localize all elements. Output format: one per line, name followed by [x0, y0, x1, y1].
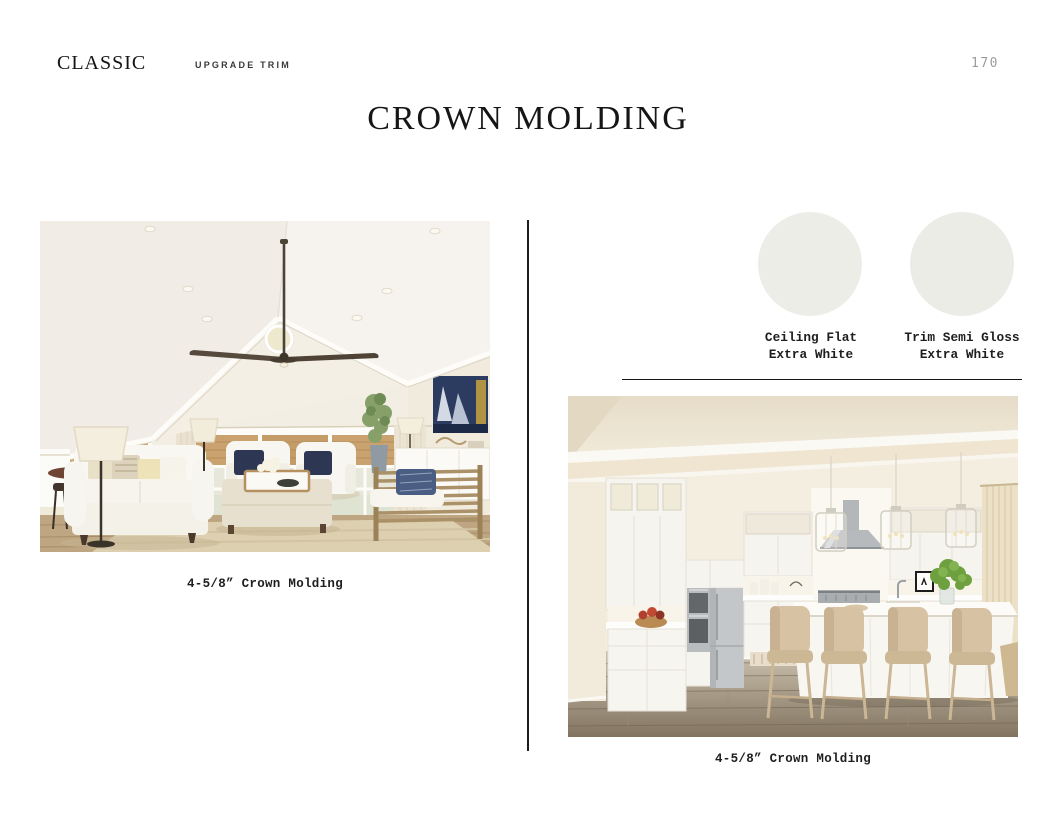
kitchen-caption: 4-5/8” Crown Molding	[568, 752, 1018, 766]
collection-name: CLASSIC	[57, 52, 146, 75]
living-room-photo	[40, 221, 490, 552]
swatch-label-trim-semi-gloss: Trim Semi Gloss Extra White	[884, 329, 1040, 363]
swatch-label-line1: Trim Semi Gloss	[884, 329, 1040, 346]
section-label: UPGRADE TRIM	[195, 60, 291, 70]
living-room-caption: 4-5/8” Crown Molding	[40, 577, 490, 591]
page-number: 170	[971, 56, 999, 71]
horizontal-divider	[622, 379, 1022, 380]
page-title: CROWN MOLDING	[0, 100, 1056, 138]
kitchen-photo	[568, 396, 1018, 737]
swatch-ceiling-flat	[758, 212, 862, 316]
catalog-page: CLASSIC UPGRADE TRIM 170 CROWN MOLDING	[0, 0, 1056, 816]
kitchen-figure	[568, 396, 1018, 737]
swatch-label-line1: Ceiling Flat	[733, 329, 889, 346]
swatch-label-ceiling-flat: Ceiling Flat Extra White	[733, 329, 889, 363]
swatch-trim-semi-gloss	[910, 212, 1014, 316]
vertical-divider	[527, 220, 529, 751]
living-room-figure	[40, 221, 490, 552]
swatch-label-line2: Extra White	[733, 346, 889, 363]
swatch-label-line2: Extra White	[884, 346, 1040, 363]
